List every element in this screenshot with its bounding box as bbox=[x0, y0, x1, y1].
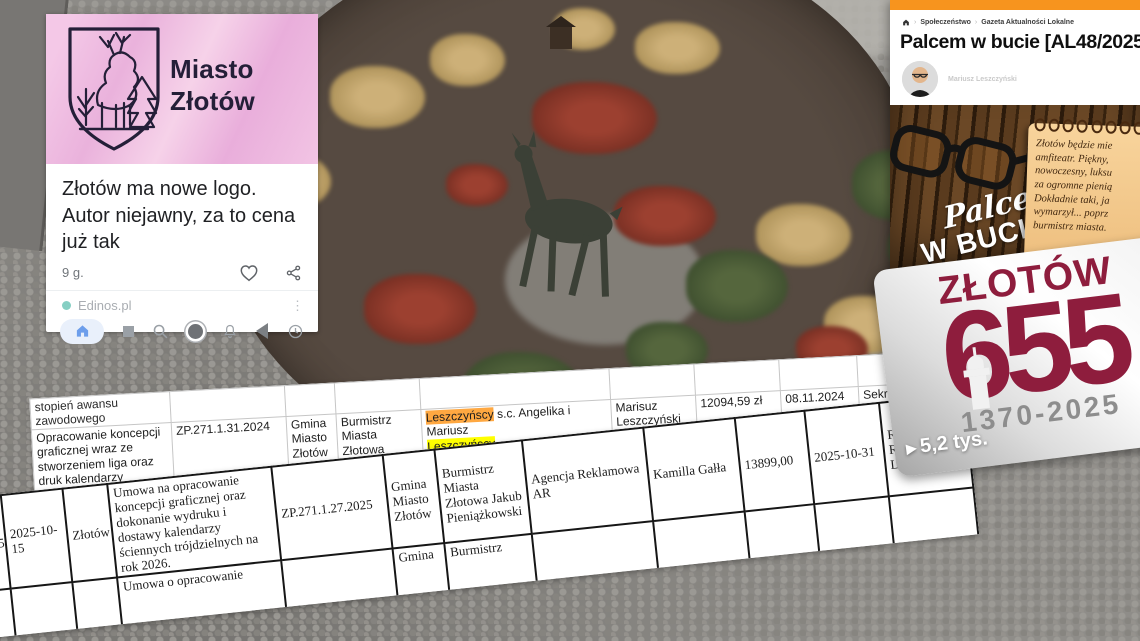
notifications-bell-icon[interactable] bbox=[222, 323, 238, 340]
table-cell-empty bbox=[72, 578, 122, 632]
source-favicon bbox=[62, 301, 71, 310]
breadcrumb-item-spoleczenstwo[interactable]: Społeczeństwo bbox=[920, 19, 971, 26]
table-cell-empty bbox=[694, 360, 781, 396]
plant-blob bbox=[364, 274, 476, 344]
anniversary-655-card[interactable]: ZŁOTÓW 655 1370-2025 ▶ 5,2 tys. bbox=[872, 234, 1140, 477]
clock-icon[interactable] bbox=[287, 323, 304, 340]
breadcrumb: › Społeczeństwo › Gazeta Aktualności Lok… bbox=[890, 10, 1140, 26]
more-options-icon[interactable]: ⋮ bbox=[291, 298, 308, 314]
site-accent-bar bbox=[890, 0, 1140, 10]
heart-icon[interactable] bbox=[239, 264, 259, 282]
breadcrumb-item-gazeta[interactable]: Gazeta Aktualności Lokalne bbox=[981, 19, 1074, 26]
plant-blob bbox=[430, 34, 505, 86]
table-cell: 2025-10-15 bbox=[1, 489, 73, 589]
card-timestamp: 9 g. bbox=[62, 265, 213, 280]
table-cell: ZP.271.1.27.2025 bbox=[271, 455, 392, 561]
source-name[interactable]: Edinos.pl bbox=[78, 298, 291, 313]
table-cell-empty bbox=[334, 379, 421, 415]
recents-square-icon[interactable] bbox=[123, 326, 134, 337]
logo-wordmark: Miasto Złotów bbox=[170, 54, 255, 117]
table-cell: Gmina bbox=[393, 544, 450, 599]
screenshot-circle-icon[interactable] bbox=[188, 324, 203, 339]
table-cell-empty bbox=[609, 364, 696, 400]
table-cell-empty bbox=[779, 356, 859, 391]
discover-news-card[interactable]: Miasto Złotów Złotów ma nowe logo. Autor… bbox=[46, 14, 318, 332]
notepad-text: Złotów będzie mie amfiteatr. Piękny, now… bbox=[1033, 137, 1140, 236]
play-icon: ▶ bbox=[905, 440, 917, 457]
table-cell: Agencja Reklamowa AR bbox=[522, 428, 653, 535]
author-name: Mariusz Leszczyński bbox=[948, 76, 1017, 83]
zlotow-crest-logo bbox=[64, 25, 164, 153]
table-cell: 2025-10-31 bbox=[804, 403, 888, 505]
search-icon[interactable] bbox=[152, 323, 169, 340]
share-icon[interactable] bbox=[285, 264, 302, 282]
plant-blob bbox=[756, 204, 851, 266]
article-title: Palcem w bucie [AL48/2025] bbox=[890, 26, 1140, 56]
back-icon[interactable] bbox=[256, 323, 268, 339]
card-hero-image: Miasto Złotów bbox=[46, 14, 318, 164]
plant-blob bbox=[635, 22, 720, 74]
home-icon bbox=[75, 324, 90, 338]
table-cell-empty bbox=[284, 383, 336, 417]
home-tab[interactable] bbox=[60, 319, 104, 344]
table-cell: 13899,00 bbox=[735, 411, 814, 512]
plant-blob bbox=[330, 66, 425, 128]
breadcrumb-separator: › bbox=[975, 19, 977, 26]
plant-blob bbox=[686, 250, 788, 322]
breadcrumb-home-icon[interactable] bbox=[902, 19, 910, 26]
card-headline[interactable]: Złotów ma nowe logo. Autor niejawny, za … bbox=[46, 164, 318, 260]
table-cell: Burmistrz Miasta Złotowa Jakub Pieniążko… bbox=[434, 440, 531, 543]
table-cell: Umowa na opracowanie koncepcji graficzne… bbox=[107, 467, 281, 578]
table-cell: Kamilla Gałła bbox=[643, 418, 744, 522]
breadcrumb-separator: › bbox=[914, 19, 916, 26]
notepad-spiral bbox=[1034, 118, 1140, 135]
birdhouse bbox=[548, 16, 574, 50]
deer-statue bbox=[468, 128, 648, 328]
author-avatar bbox=[902, 61, 938, 97]
author-row[interactable]: Mariusz Leszczyński bbox=[890, 56, 1140, 102]
